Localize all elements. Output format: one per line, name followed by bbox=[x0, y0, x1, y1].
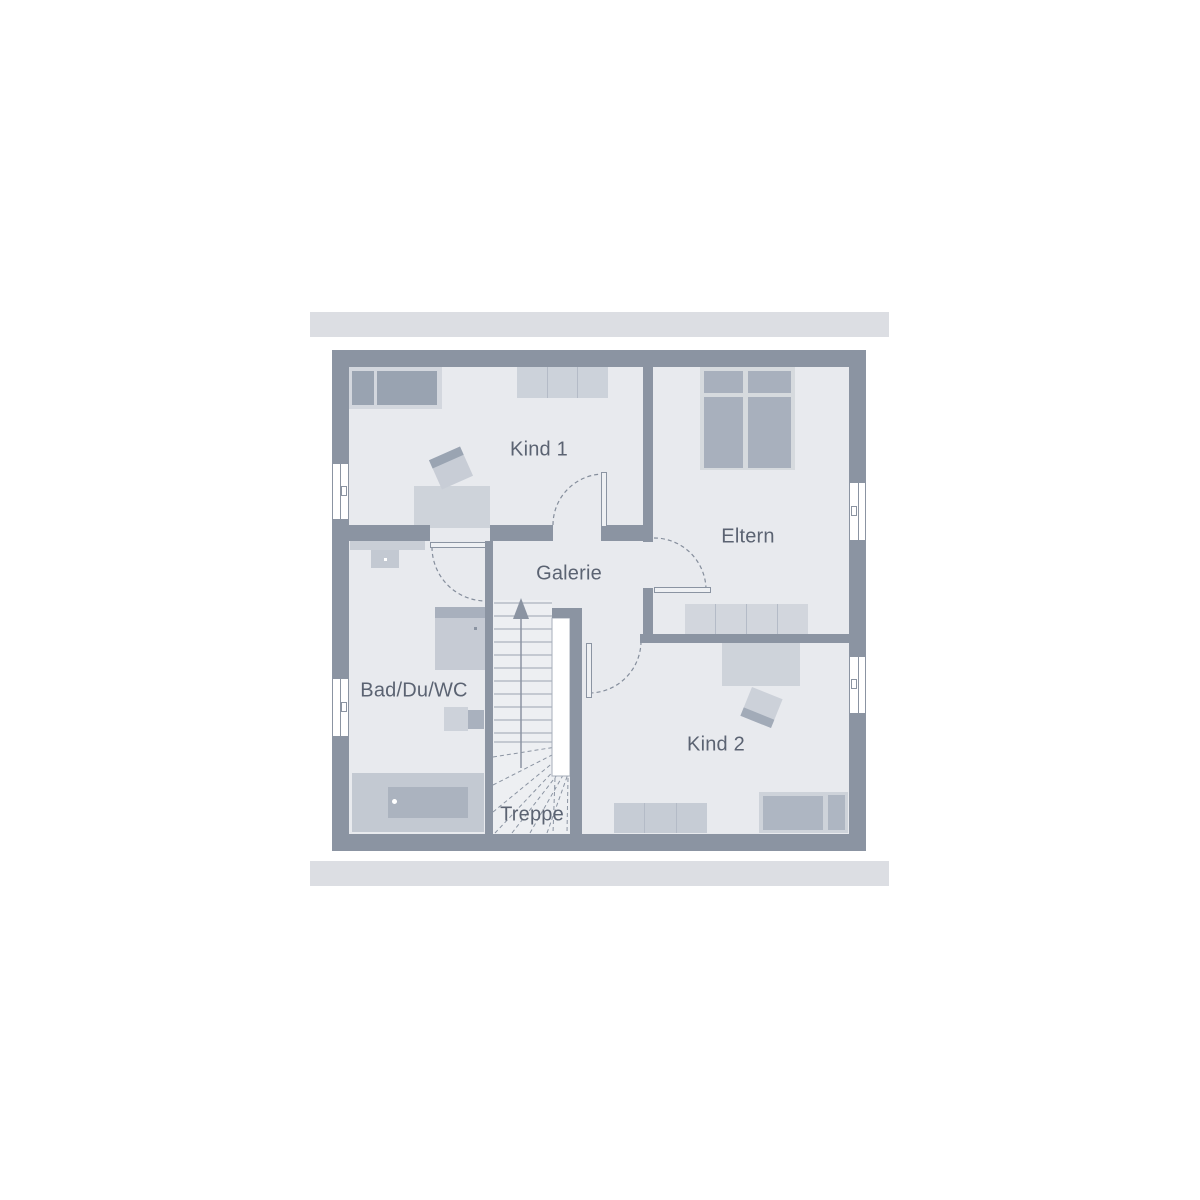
plan-linework bbox=[0, 0, 1200, 1200]
room-label-treppe: Treppe bbox=[500, 804, 564, 827]
wall-stair-void-cap bbox=[552, 608, 582, 618]
window-bad-left bbox=[332, 678, 349, 737]
door-arc-eltern bbox=[654, 538, 706, 590]
wall-kind1-eltern bbox=[643, 367, 653, 542]
room-label-eltern: Eltern bbox=[721, 526, 774, 549]
wall-kind1-south-east bbox=[601, 525, 653, 541]
wall-exterior-bottom bbox=[332, 834, 866, 851]
room-label-kind2: Kind 2 bbox=[687, 734, 745, 757]
wall-exterior-left bbox=[332, 350, 349, 851]
floor-plan-canvas: Kind 1 Eltern Galerie Bad/Du/WC Kind 2 T… bbox=[0, 0, 1200, 1200]
room-label-bad: Bad/Du/WC bbox=[360, 680, 467, 703]
door-arc-bad bbox=[432, 547, 486, 601]
wall-eltern-kind2-divider bbox=[640, 634, 849, 643]
room-label-galerie: Galerie bbox=[536, 563, 602, 586]
door-leaf-eltern bbox=[654, 587, 711, 593]
stair-void bbox=[552, 618, 570, 776]
wall-stair-east bbox=[570, 618, 582, 834]
door-arc-kind1 bbox=[553, 474, 604, 525]
wall-kind1-south-west bbox=[349, 525, 430, 541]
window-kind2-right bbox=[849, 656, 866, 714]
door-leaf-kind1 bbox=[601, 472, 607, 527]
wall-exterior-right bbox=[849, 350, 866, 851]
window-eltern-right bbox=[849, 482, 866, 541]
wall-kind1-south-mid bbox=[490, 525, 553, 541]
stair-up-arrow bbox=[513, 598, 529, 619]
door-leaf-kind2 bbox=[586, 643, 592, 698]
room-label-kind1: Kind 1 bbox=[510, 439, 568, 462]
window-kind1-left bbox=[332, 463, 349, 520]
door-leaf-bad bbox=[430, 542, 486, 548]
wall-stair-west bbox=[485, 541, 493, 834]
door-arc-kind2 bbox=[589, 641, 641, 693]
wall-exterior-top bbox=[332, 350, 866, 367]
